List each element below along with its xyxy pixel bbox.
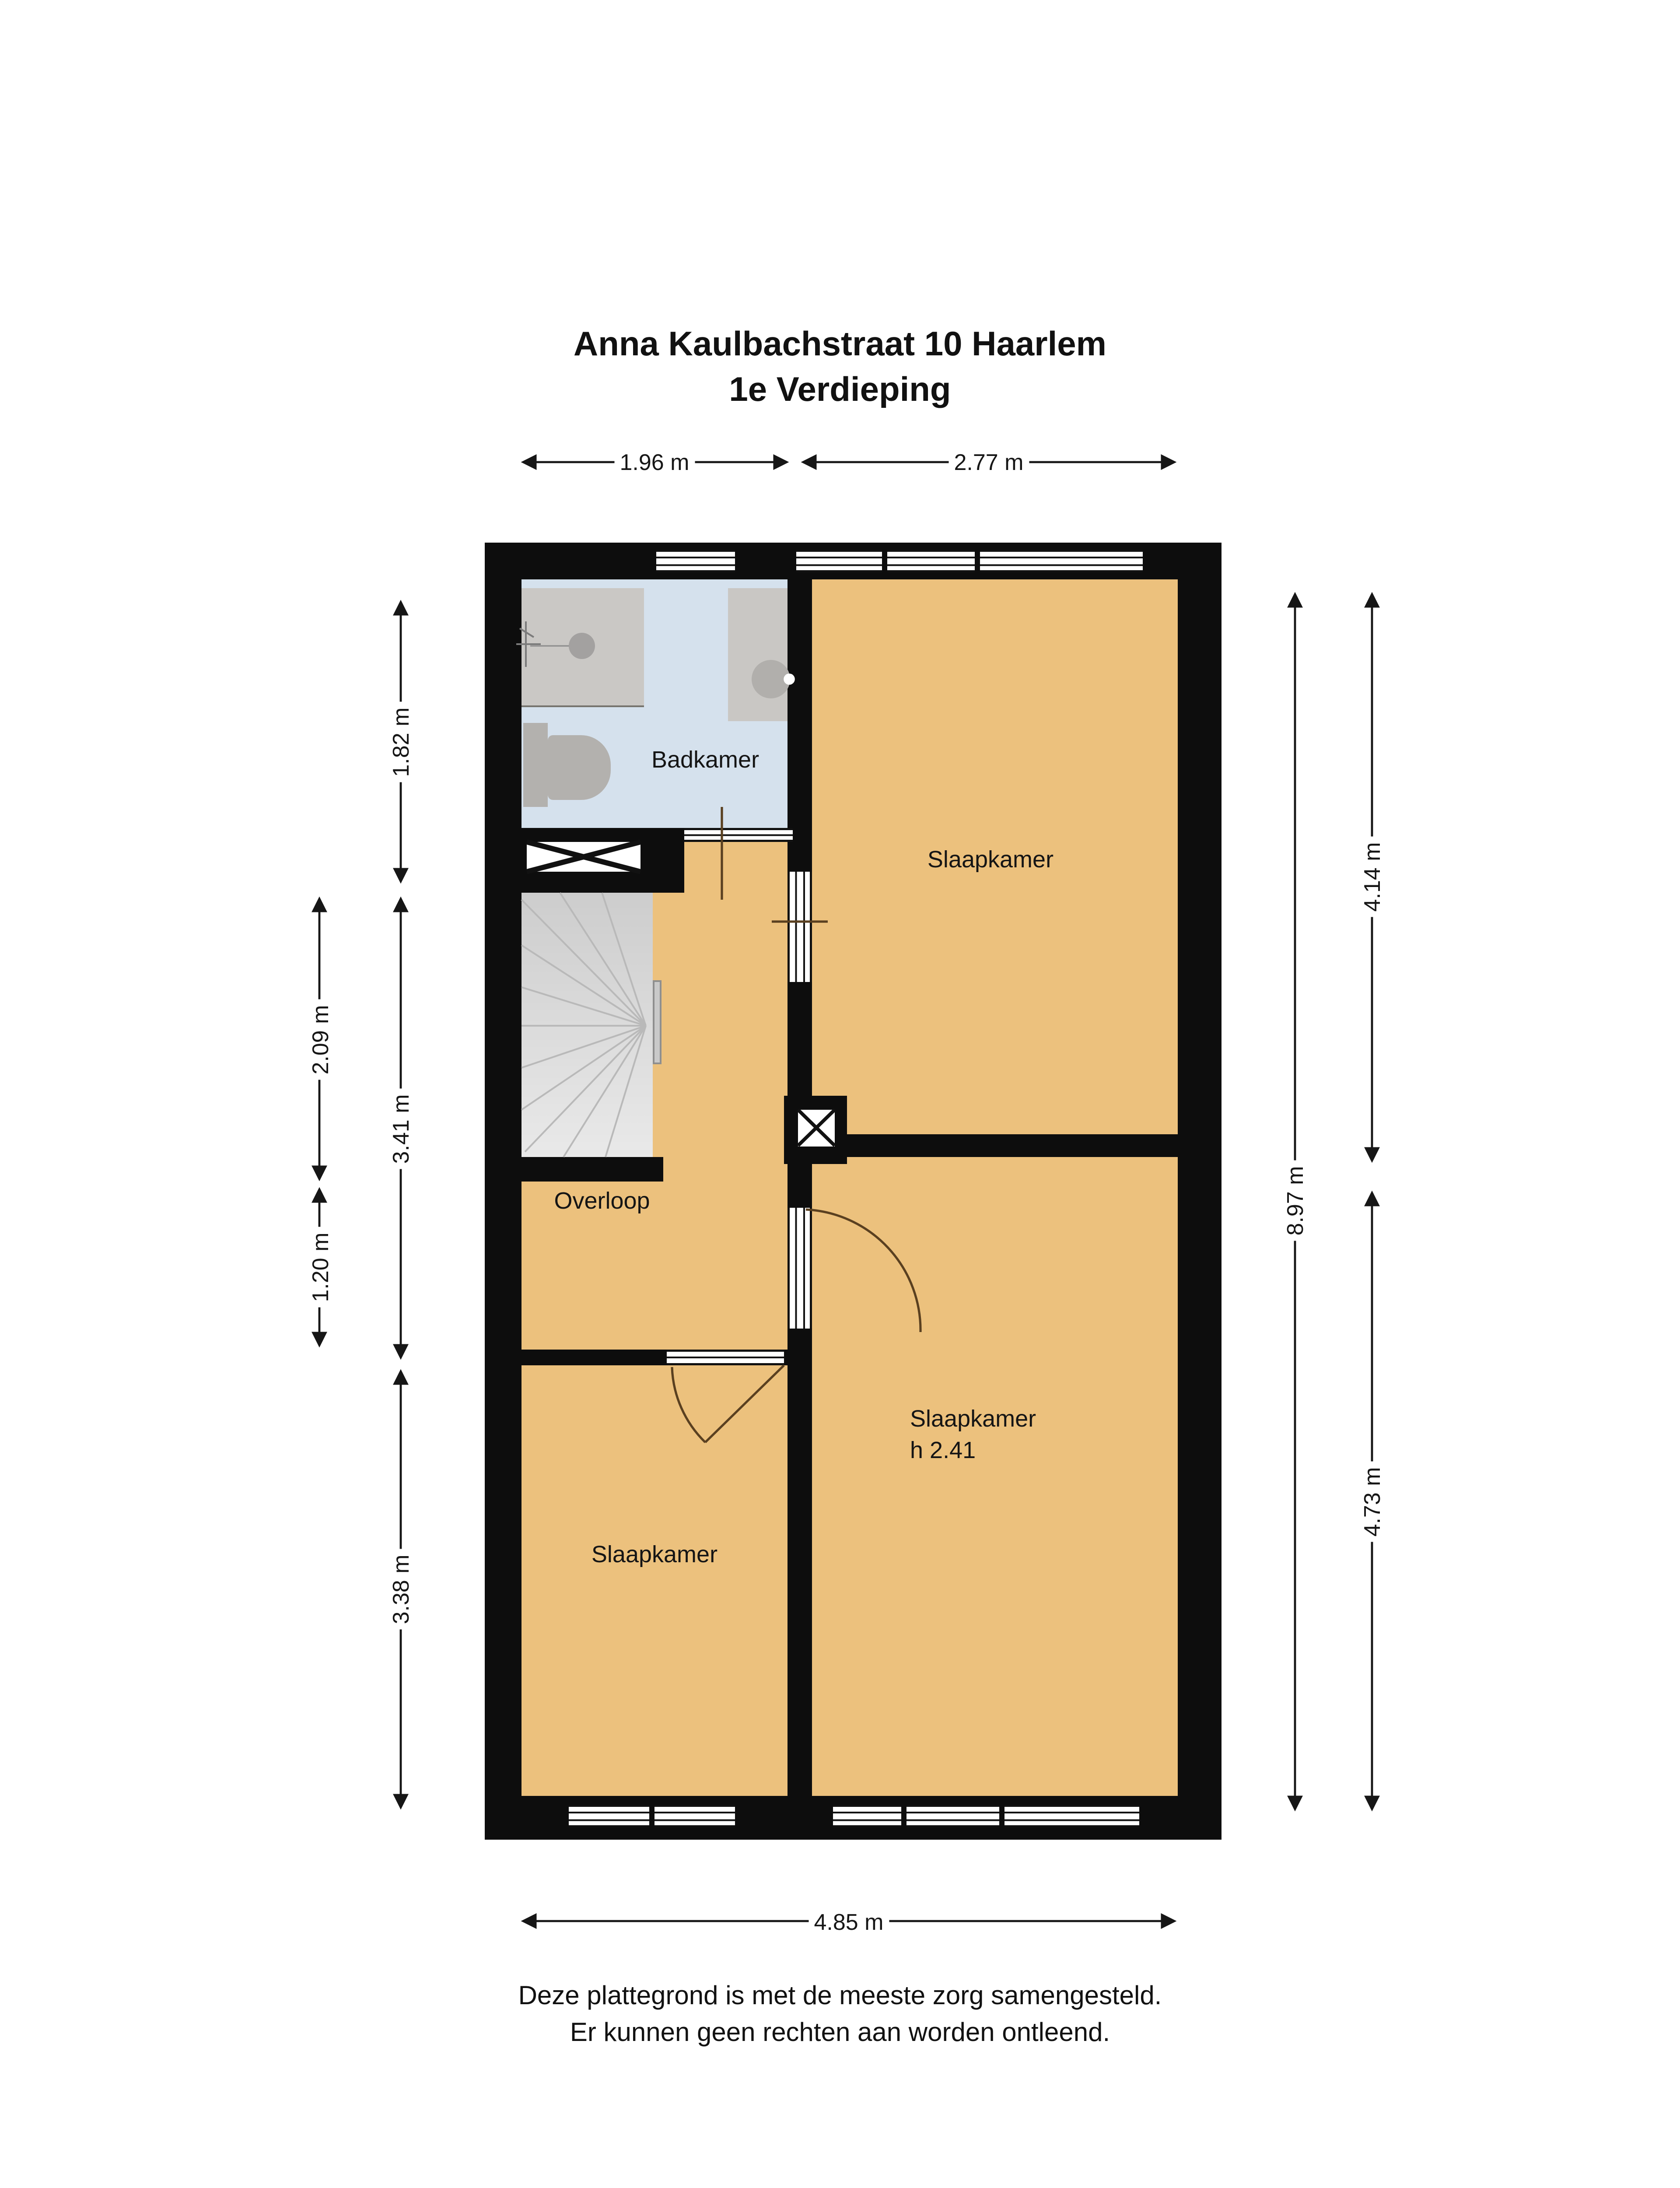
room-label-overloop: Overloop bbox=[554, 1188, 650, 1214]
door-swing-arcs bbox=[672, 807, 920, 1442]
room-label-slaapkamer-right-height: h 2.41 bbox=[910, 1434, 1036, 1465]
overloop-left-door-arc bbox=[672, 1367, 705, 1442]
disclaimer: Deze plattegrond is met de meeste zorg s… bbox=[0, 1980, 1680, 2051]
disclaimer-line2: Er kunnen geen rechten aan worden ontlee… bbox=[0, 2016, 1680, 2051]
disclaimer-line1: Deze plattegrond is met de meeste zorg s… bbox=[0, 1980, 1680, 2016]
dimension-label-left-outer-lower: 1.20 m bbox=[306, 1227, 332, 1308]
chimney-x bbox=[798, 1110, 835, 1146]
stair-void-x bbox=[527, 842, 640, 872]
dimension-label-top-right: 2.77 m bbox=[949, 449, 1029, 475]
dimension-label-left-outer-upper: 2.09 m bbox=[306, 1000, 332, 1080]
room-label-slaapkamer-bottom: Slaapkamer bbox=[591, 1541, 717, 1567]
dimension-label-left-inner-mid: 3.41 m bbox=[388, 1089, 414, 1169]
floorplan-page: Anna Kaulbachstraat 10 Haarlem 1e Verdie… bbox=[0, 0, 1680, 2188]
dimension-label-right-inner: 8.97 m bbox=[1282, 1161, 1308, 1241]
title-address: Anna Kaulbachstraat 10 Haarlem bbox=[0, 322, 1680, 368]
dimension-lines bbox=[319, 462, 1372, 1921]
overloop-right-door-arc bbox=[806, 1210, 920, 1332]
faucet-icon bbox=[516, 621, 541, 667]
stairs-treads-icon bbox=[521, 893, 646, 1157]
dimension-label-right-outer-lower: 4.73 m bbox=[1359, 1462, 1385, 1542]
title-floor: 1e Verdieping bbox=[0, 368, 1680, 413]
room-label-slaapkamer-right: Slaapkamer h 2.41 bbox=[910, 1404, 1036, 1465]
page-title: Anna Kaulbachstraat 10 Haarlem 1e Verdie… bbox=[0, 322, 1680, 413]
dimension-label-top-left: 1.96 m bbox=[615, 449, 695, 475]
dimension-label-left-inner-bottom: 3.38 m bbox=[388, 1550, 414, 1630]
dimension-label-left-inner-top: 1.82 m bbox=[388, 702, 414, 782]
overloop-left-door-leaf-line bbox=[705, 1365, 784, 1442]
room-label-slaapkamer-right-name: Slaapkamer bbox=[910, 1404, 1036, 1434]
washbasin-tap-icon bbox=[784, 673, 795, 685]
dimension-label-right-outer-upper: 4.14 m bbox=[1359, 837, 1385, 917]
dimension-label-bottom: 4.85 m bbox=[809, 1908, 889, 1934]
room-label-badkamer: Badkamer bbox=[651, 747, 759, 773]
room-label-slaapkamer-top: Slaapkamer bbox=[927, 846, 1053, 873]
shower-drain-icon bbox=[569, 633, 595, 659]
